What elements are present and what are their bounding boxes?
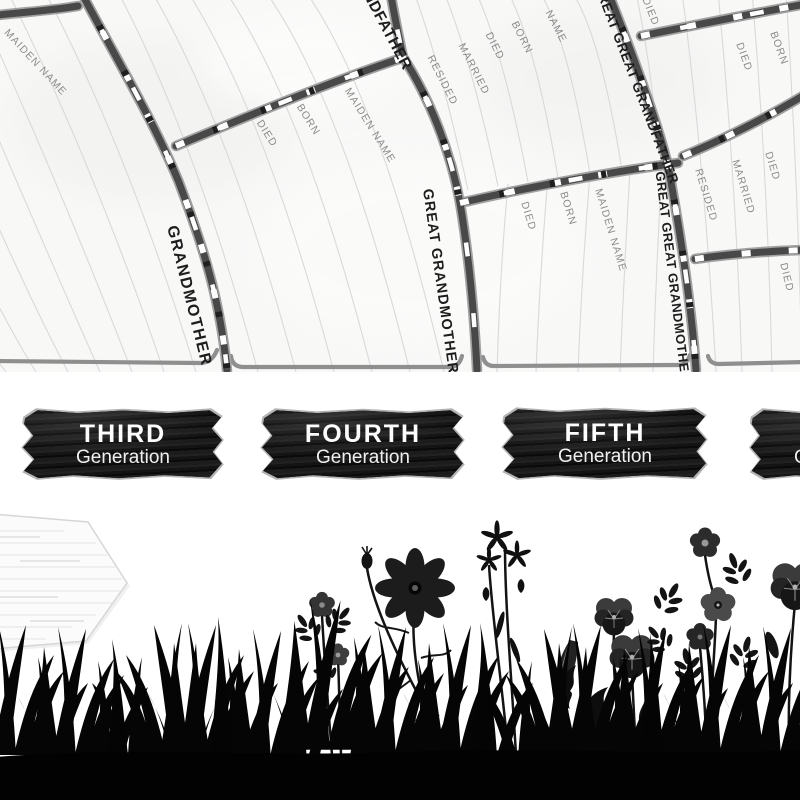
sign-ordinal: FOURTH [305,422,421,447]
campion-flowers [476,520,532,663]
sign-ordinal: FIFTH [565,421,646,446]
sign-word-generation: Generation [558,447,652,467]
family-tree-poster: MAIDEN NAME BORN DIED BORN MAIDEN NAME R… [0,0,800,800]
pansy-flower-right-edge [771,563,800,610]
generation-sign-fifth: FIFTH Generation [498,405,712,483]
generation-sign-fourth: FOURTH Generation [257,406,469,483]
cosmos-bud [362,546,373,569]
blank-arrow-sign [0,514,130,652]
sign-wood-panel: FOURTH Generation [259,408,467,481]
sign-word-generation: Generation [794,448,800,468]
sign-word-generation: Generation [316,448,410,468]
grass-silhouette [0,598,800,800]
generation-sign-sixth-partial: SIXTH Generation [746,406,800,483]
fan-chart: MAIDEN NAME BORN DIED BORN MAIDEN NAME R… [0,0,800,372]
sign-wood-panel: THIRD Generation [20,408,226,481]
sign-wood-panel: FIFTH Generation [500,407,710,481]
generation-sign-third: THIRD Generation [18,406,228,483]
sign-word-generation: Generation [76,448,170,468]
sign-wood-panel: SIXTH Generation [748,408,800,481]
meadow-scene [0,505,800,800]
sign-ordinal: THIRD [80,422,166,447]
